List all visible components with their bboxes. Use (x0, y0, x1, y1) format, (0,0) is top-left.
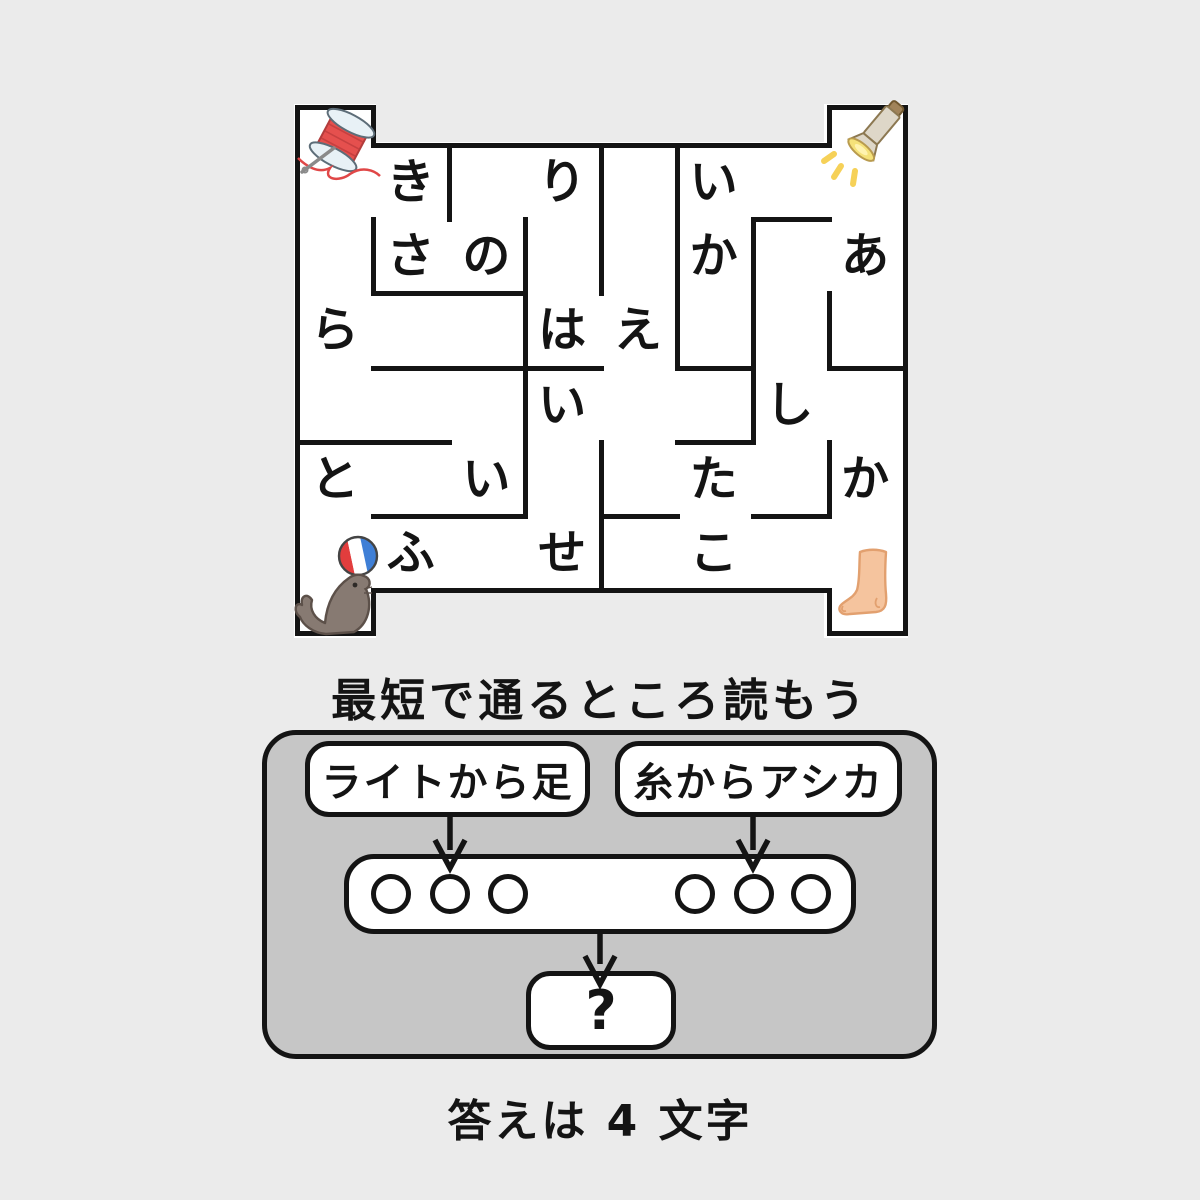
maze-letter: ら (311, 306, 359, 354)
maze-letter: い (538, 381, 586, 429)
maze-wall (675, 366, 756, 371)
foot-icon (832, 548, 896, 626)
answer-note-caption: 答えは 4 文字 (0, 1085, 1200, 1149)
thread-spool-icon (292, 106, 384, 190)
maze-wall (675, 143, 680, 371)
maze-wall (827, 366, 908, 371)
maze-wall (675, 440, 756, 445)
maze-letter: か (841, 455, 889, 503)
maze-wall (751, 217, 832, 222)
maze-letter: ふ (387, 529, 435, 577)
maze-letter: た (690, 455, 738, 503)
maze-letter: か (690, 232, 738, 280)
maze-wall (447, 143, 452, 222)
maze-letter: の (462, 232, 510, 280)
maze-wall (827, 588, 832, 636)
maze-letter: あ (841, 232, 889, 280)
maze-letter: え (614, 306, 662, 354)
maze-wall (599, 143, 604, 296)
instruction-caption: 最短で通るところ読もう (0, 664, 1200, 729)
maze-letter: り (538, 158, 586, 206)
maze-wall (371, 366, 604, 371)
maze-letter: は (538, 306, 586, 354)
maze-wall (371, 291, 528, 296)
maze-letter: き (387, 158, 435, 206)
maze-wall (371, 143, 832, 148)
maze-wall (827, 440, 832, 519)
maze-letter: い (690, 158, 738, 206)
maze-letter: い (462, 455, 510, 503)
maze-wall (751, 514, 832, 519)
maze-letter: し (765, 381, 813, 429)
maze-wall (371, 514, 528, 519)
maze-letter: さ (387, 232, 435, 280)
maze-wall (827, 291, 832, 371)
maze-wall (599, 514, 680, 519)
maze-letter: と (311, 455, 359, 503)
maze-letter: せ (538, 529, 586, 577)
flashlight-icon (818, 98, 913, 193)
maze-letter: こ (690, 529, 738, 577)
flow-arrows (240, 800, 960, 1060)
sea-lion-icon (288, 532, 388, 642)
puzzle-page: きりいさのかあらはえいしといたかふせこ (0, 0, 1200, 1200)
maze-wall (827, 631, 908, 636)
maze-wall (371, 588, 832, 593)
maze-wall (371, 217, 376, 296)
maze-wall (295, 440, 452, 445)
maze-wall (751, 217, 756, 445)
